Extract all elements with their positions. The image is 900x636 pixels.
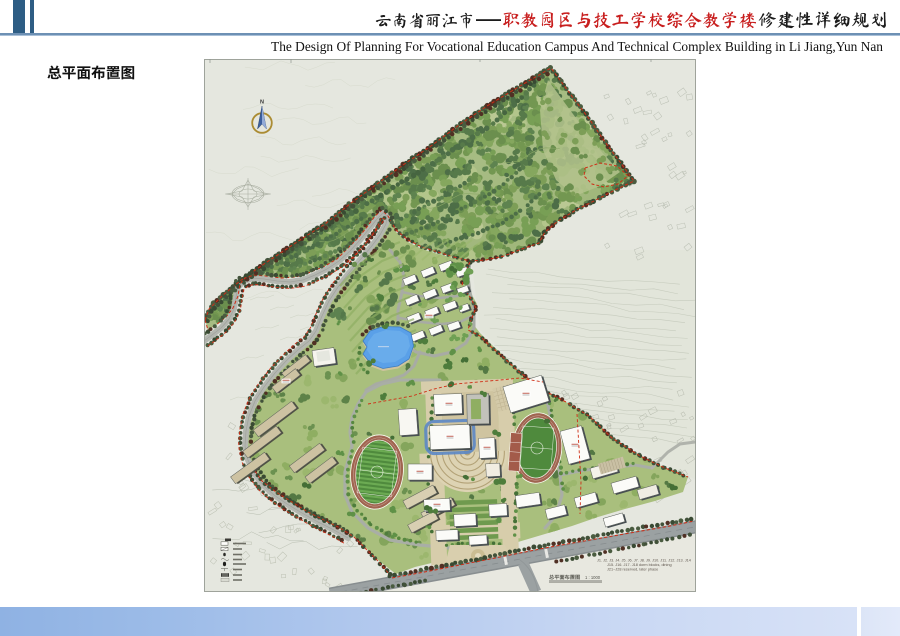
svg-text:1 : 1000: 1 : 1000 bbox=[585, 575, 601, 580]
svg-text:J21~J28 reserved, later phase: J21~J28 reserved, later phase bbox=[607, 568, 658, 572]
svg-text:N: N bbox=[260, 100, 264, 106]
svg-text:J15. J16. J17. J18 dorm blocks: J15. J16. J17. J18 dorm blocks, dining bbox=[607, 563, 672, 567]
svg-text:J1. J2. J3. J4. J5. J6. J7. J8: J1. J2. J3. J4. J5. J6. J7. J8. J9. J10.… bbox=[597, 559, 691, 563]
